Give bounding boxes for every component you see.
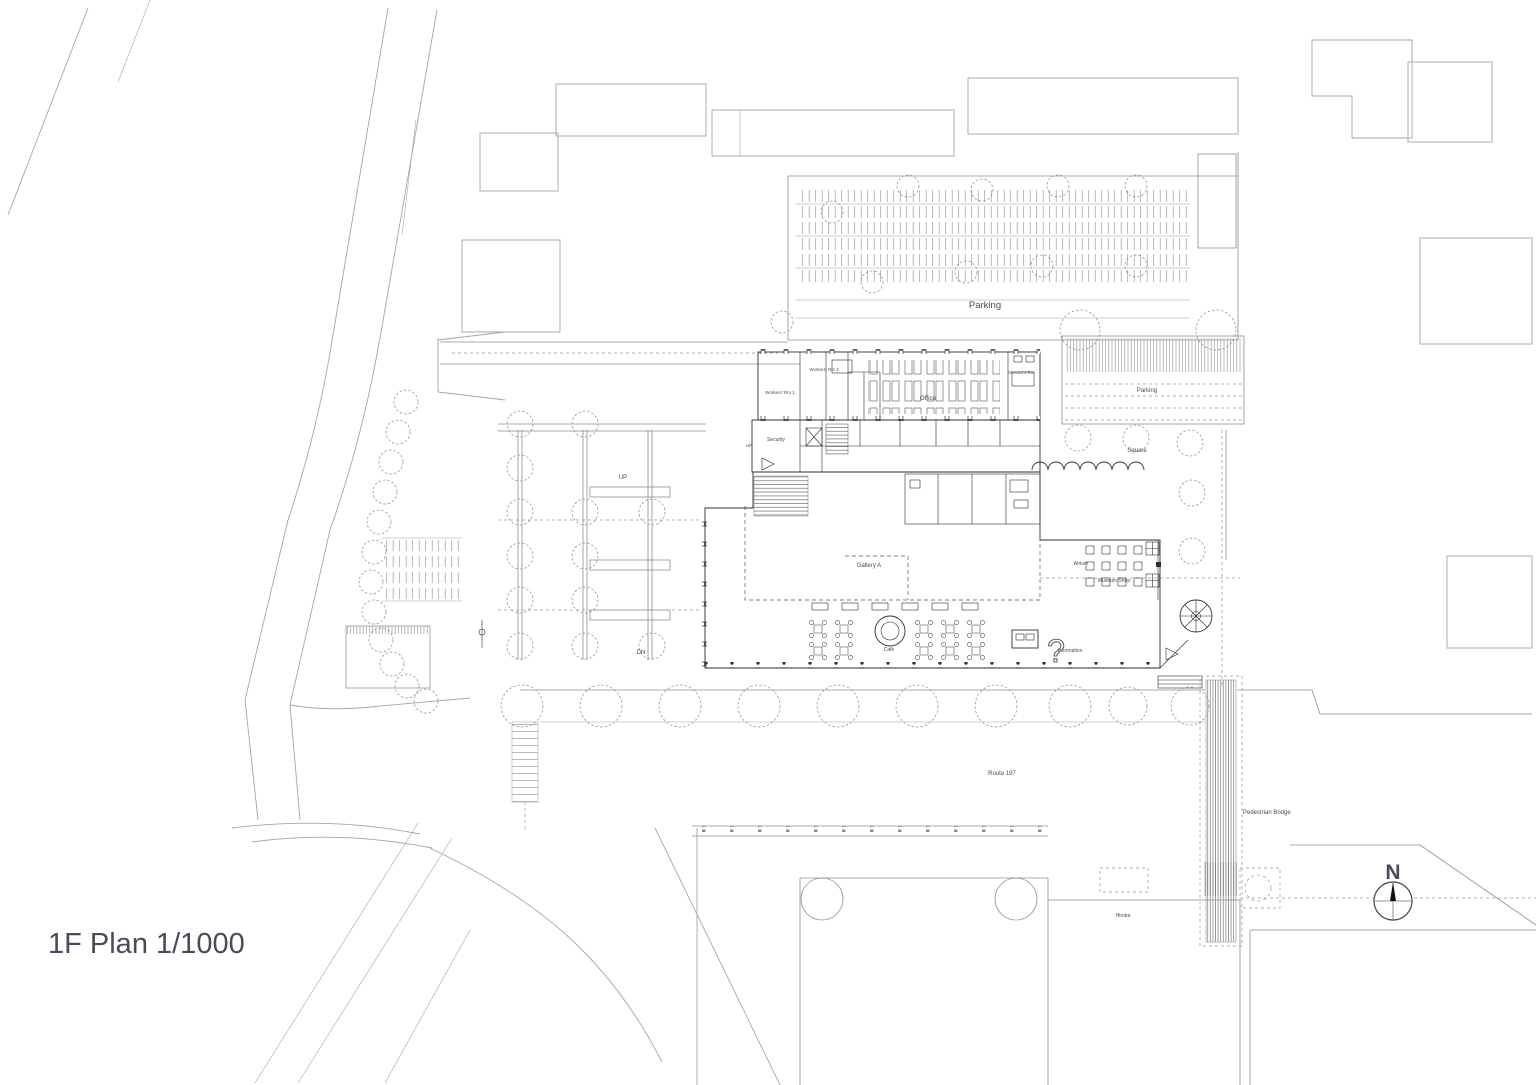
label-cafe: Café <box>884 647 895 653</box>
label-workers-rm-2: Workers' Rm 2 <box>809 367 839 372</box>
site-plan-page: 1F Plan 1/1000NParkingParkingSquareOffic… <box>0 0 1536 1085</box>
steps <box>512 722 538 802</box>
label-directors-rm: Director's Rm <box>1007 370 1034 375</box>
label-dn-ramp: DN <box>637 650 646 656</box>
label-square: Square <box>1127 448 1147 454</box>
label-pedestrian-bridge: Pedestrian Bridge <box>1243 810 1291 816</box>
colonnade-columns <box>705 662 1160 668</box>
site-plan-drawing: 1F Plan 1/1000NParkingParkingSquareOffic… <box>0 0 1536 1085</box>
gallery-a-outline <box>745 506 1040 600</box>
parking-stall-row <box>800 254 1188 266</box>
label-security: Security <box>767 437 786 443</box>
label-workers-rm-1: Workers' Rm 1 <box>765 390 795 395</box>
label-parking-roof: Parking <box>1137 388 1157 394</box>
main-stair <box>754 476 808 516</box>
label-route-197: Route 197 <box>988 771 1016 777</box>
label-museum-shop: Museum Shop <box>1098 578 1130 584</box>
spiral-stair <box>1180 600 1212 632</box>
label-question-object: ? <box>1047 633 1065 669</box>
office-desks <box>868 360 1000 414</box>
parking-stall-row <box>800 270 1188 282</box>
label-north-letter: N <box>1385 861 1400 884</box>
museum-building <box>702 349 1212 688</box>
cafe-counter <box>875 616 905 646</box>
context-roads <box>8 0 1532 1085</box>
label-gallery-a: Gallery A <box>857 563 881 569</box>
parking-stall-row <box>800 206 1188 218</box>
arched-canopy <box>1032 462 1144 470</box>
north-compass <box>1374 882 1412 920</box>
parking-stall-row <box>800 238 1188 250</box>
label-parking-lot: Parking <box>969 300 1001 311</box>
label-hiroba: Hiroba <box>1116 913 1131 919</box>
west-approach <box>382 424 706 830</box>
south-buildings <box>692 826 1536 1085</box>
label-up-stair: UP <box>746 443 752 448</box>
parking-stall-row <box>800 222 1188 234</box>
parking-stall-row <box>800 190 1188 202</box>
label-plan-title: 1F Plan 1/1000 <box>48 928 245 960</box>
label-office: Office <box>920 395 937 402</box>
label-up-ramp: UP <box>619 475 627 481</box>
plan-labels: 1F Plan 1/1000NParkingParkingSquareOffic… <box>48 300 1401 960</box>
label-atrium: Atrium <box>1074 561 1088 567</box>
